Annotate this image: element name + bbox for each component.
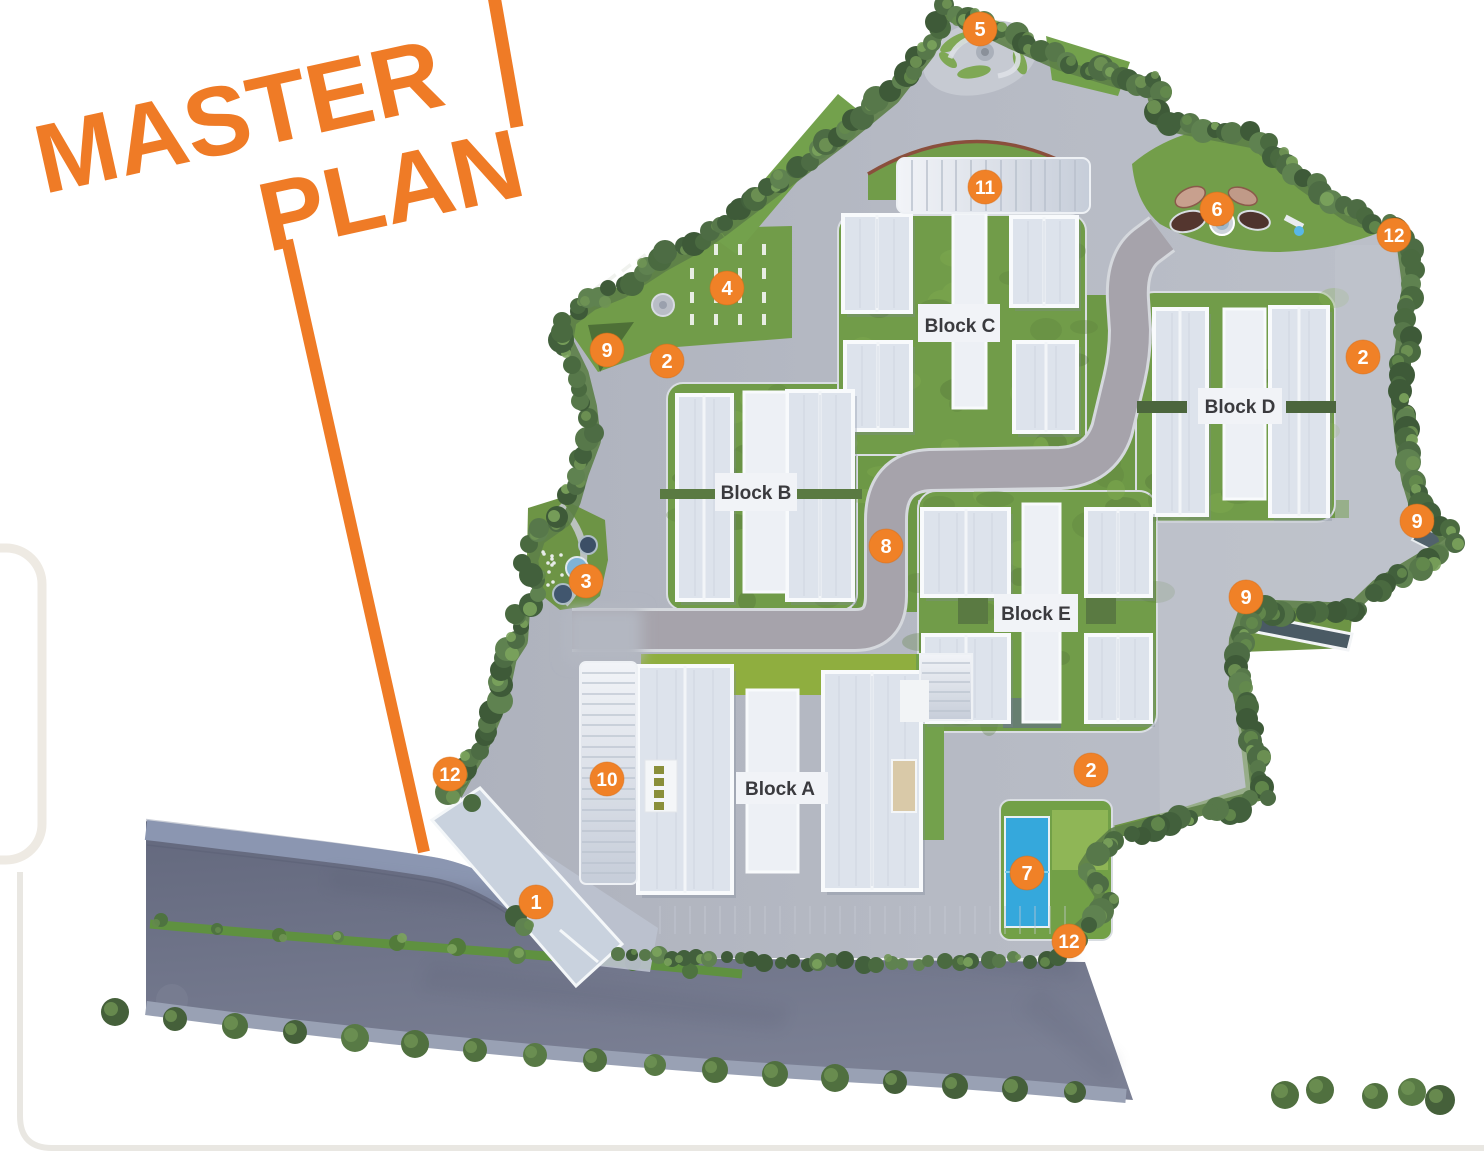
svg-text:Block C: Block C xyxy=(925,316,996,337)
svg-text:Block E: Block E xyxy=(1001,604,1071,625)
svg-text:9: 9 xyxy=(601,340,612,362)
svg-text:12: 12 xyxy=(1058,932,1079,953)
svg-text:Block A: Block A xyxy=(745,779,815,800)
svg-text:Block B: Block B xyxy=(721,483,792,504)
svg-text:12: 12 xyxy=(1383,226,1404,247)
svg-text:10: 10 xyxy=(596,770,617,791)
svg-text:2: 2 xyxy=(1085,760,1096,782)
svg-text:6: 6 xyxy=(1211,199,1222,221)
svg-text:5: 5 xyxy=(974,19,985,41)
svg-text:2: 2 xyxy=(1357,347,1368,369)
svg-text:3: 3 xyxy=(580,571,591,593)
svg-text:Block D: Block D xyxy=(1205,397,1276,418)
svg-text:1: 1 xyxy=(530,892,541,914)
svg-text:2: 2 xyxy=(661,351,672,373)
svg-text:9: 9 xyxy=(1411,511,1422,533)
svg-text:8: 8 xyxy=(880,536,891,558)
svg-text:12: 12 xyxy=(439,765,460,786)
svg-text:9: 9 xyxy=(1240,587,1251,609)
svg-text:11: 11 xyxy=(975,178,996,199)
svg-text:7: 7 xyxy=(1021,863,1032,885)
svg-text:4: 4 xyxy=(721,278,733,300)
